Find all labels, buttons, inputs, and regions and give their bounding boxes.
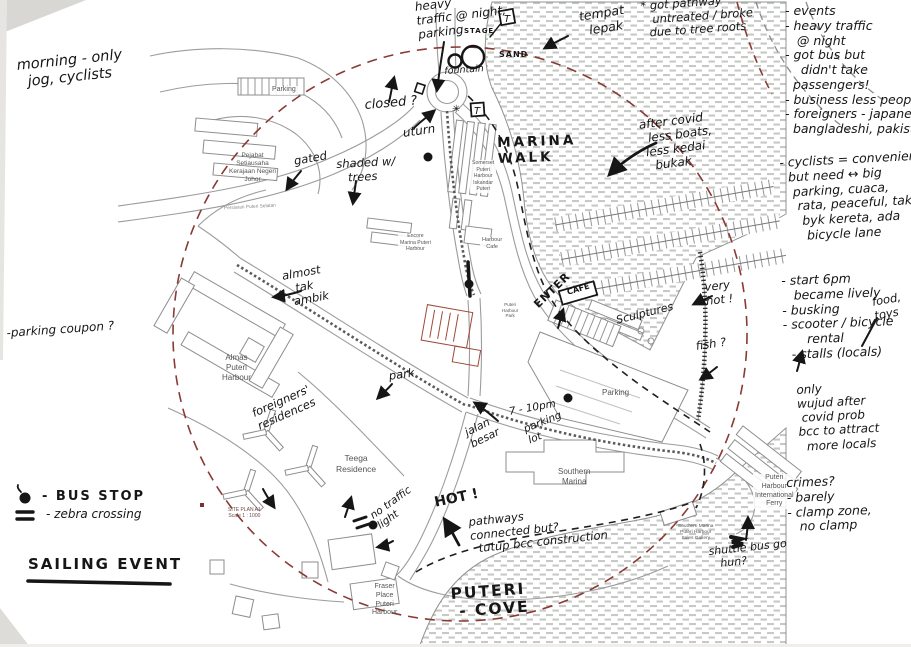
small-flag-box: [415, 83, 425, 94]
legend-bus-stop-label: - BUS STOP: [42, 489, 145, 504]
legend-dot-tail: [18, 485, 21, 492]
legend-sailing-event: SAILING EVENT: [28, 556, 182, 574]
map-label-sales-gallery: Southern MarinaPuteri HarbourSales Galle…: [678, 524, 713, 542]
legend-zebra-label: - zebra crossing: [46, 507, 141, 521]
note-puteri-cove: PUTERI - COVE: [450, 580, 530, 622]
legend-zebra-symbol: [17, 512, 33, 519]
red-outline-buildings: [421, 305, 480, 367]
toilet-letter-somerset: T: [474, 106, 481, 117]
note-right-crimes: crimes?- barely- clamp zone, no clamp: [786, 473, 872, 535]
map-label-parking-east: Parking: [602, 388, 629, 398]
map-label-encore: EncoreMarina PuteriHarbour: [398, 233, 433, 253]
arrow-foreigners: [263, 489, 274, 507]
arrow-shaded-trees: [353, 181, 356, 203]
arrow-hot: [445, 520, 459, 545]
zebra-crossing-mark: [354, 517, 369, 528]
map-label-almas: AlmasPuteriHarbour: [222, 353, 251, 383]
note-sand: SAND: [499, 50, 528, 59]
note-after-covid: after covid less boats, less kedai bukak: [638, 109, 716, 174]
map-label-fraser: FraserPlacePuteriHarbour: [372, 583, 397, 618]
map-label-site-plan: SITE PLAN A1Scale 1 : 1000: [228, 507, 261, 520]
annotated-map-photo: T T ✳ Parking PejabatSetiausahaKerajaan …: [0, 0, 911, 647]
note-right-events: - events- heavy traffic @ night- got bus…: [785, 4, 911, 137]
arrow-park: [378, 384, 392, 398]
map-label-parking-nw: Parking: [270, 86, 298, 95]
arrow-fraser: [345, 498, 351, 517]
note-almost-tak-ambik: almost tak ambik: [281, 263, 330, 310]
note-stage: STAGE: [464, 27, 494, 35]
map-label-somerset: SomersetPuteriHarbourIskandarPuteri: [470, 160, 496, 193]
star-mark: ✳: [452, 104, 460, 115]
note-right-cyclists: - cyclists = convenients but need ↔ big …: [779, 148, 911, 244]
note-right-covid: onlywujud after covid probbcc to attract…: [796, 379, 880, 454]
legend-bus-stop-dot: [20, 493, 31, 504]
note-right-food-toys: food,toys: [871, 291, 904, 323]
map-label-teega: TeegaResidence: [336, 453, 376, 474]
note-shaded-trees: shaded w/ trees: [336, 155, 396, 185]
note-marina-walk: MARINAWALK: [497, 133, 577, 168]
site-plan-marker: [200, 503, 204, 507]
map-label-family-park: PuteriHarbourPark: [500, 302, 520, 319]
map-label-pejabat: PejabatSetiausahaKerajaan NegeriJohor: [229, 152, 276, 185]
sailing-event-underline: [28, 581, 170, 584]
note-very-hot: veryhot !: [704, 278, 734, 308]
map-label-southern-marina: SouthernMarina: [558, 467, 590, 487]
arrow-no-traffic-light: [378, 541, 393, 547]
crossing-emphasis-mark: [468, 262, 470, 296]
map-label-harbour-cafe: HarbourCafe: [480, 237, 504, 251]
